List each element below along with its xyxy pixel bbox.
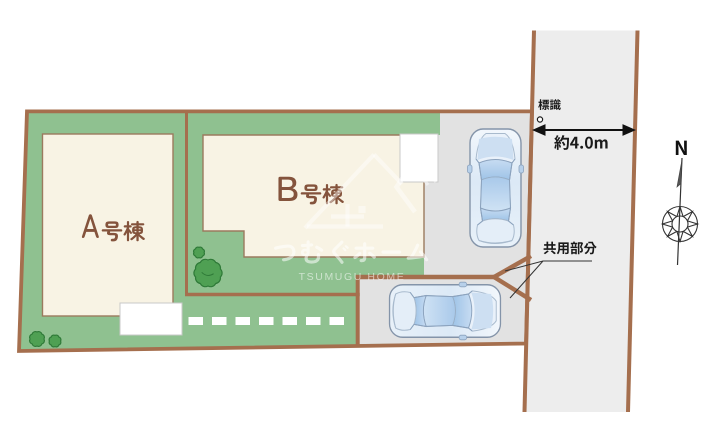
svg-text:TSUMUGU HOME: TSUMUGU HOME	[299, 271, 406, 283]
